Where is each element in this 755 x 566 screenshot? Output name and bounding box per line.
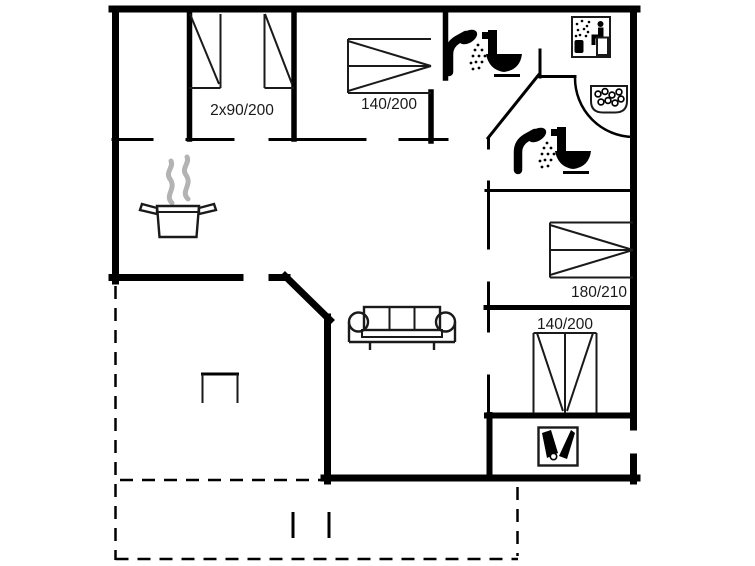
double-bed-right: 180/210 — [550, 223, 633, 302]
steam-wisp-1 — [168, 161, 172, 203]
toilet-icon-1 — [482, 30, 522, 77]
terrace-table — [201, 374, 239, 403]
pot-handle-left — [140, 204, 157, 214]
sauna-bench — [597, 38, 608, 56]
single-bed-1 — [189, 14, 221, 88]
utility-tool-right — [559, 430, 575, 459]
twin-beds: 2x90/200 — [189, 14, 294, 119]
shower-icon-2 — [518, 125, 555, 170]
sofa-back — [364, 307, 440, 330]
bathroom2-diagonal-wall — [488, 75, 539, 138]
single-bed-2 — [265, 14, 295, 88]
utility-icon — [539, 428, 578, 466]
cooking-pot-icon — [140, 157, 216, 237]
shower-spray-dots — [470, 44, 487, 71]
bed-label-top: 140/200 — [361, 96, 417, 113]
pot-body — [157, 206, 199, 237]
sauna-steam-dots — [575, 20, 591, 38]
terrace-outline — [116, 286, 519, 560]
shower-icon-1 — [449, 27, 486, 72]
sauna-stove — [575, 40, 584, 53]
floor-plan-page: 2x90/200 140/200 180/210 140/200 — [0, 0, 755, 566]
whirlpool-icon — [591, 86, 627, 113]
bed-label-twin: 2x90/200 — [210, 102, 274, 119]
steam-wisp-2 — [184, 157, 188, 199]
bed-label-bottom: 140/200 — [537, 316, 593, 333]
pot-handle-right — [199, 204, 216, 214]
shower-spray-dots — [539, 142, 556, 169]
sauna-icon — [572, 17, 610, 57]
floor-plan: 2x90/200 140/200 180/210 140/200 — [0, 0, 755, 566]
whirlpool-bubbles — [595, 89, 624, 106]
toilet-icon-2 — [551, 127, 591, 174]
utility-tool-ring — [550, 453, 556, 459]
living-diagonal-wall — [285, 276, 330, 320]
double-bed-bottom: 140/200 — [534, 316, 597, 413]
sofa-icon — [349, 307, 455, 350]
bed-label-right: 180/210 — [571, 284, 627, 301]
double-bed-top: 140/200 — [348, 39, 431, 113]
interior-walls — [113, 9, 633, 478]
